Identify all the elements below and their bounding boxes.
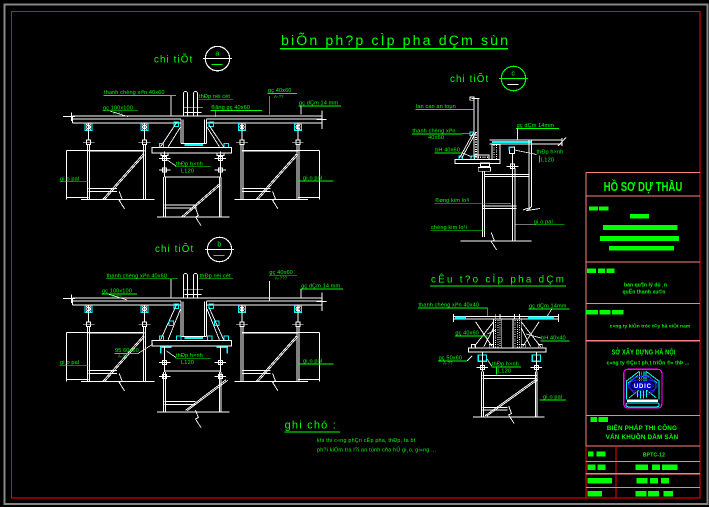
svg-text:40x60: 40x60: [428, 135, 444, 141]
svg-text:L120: L120: [541, 157, 554, 163]
svg-text:SỞ XÂY DỰNG HÀ NỘI: SỞ XÂY DỰNG HÀ NỘI: [611, 347, 675, 357]
svg-text:L120: L120: [498, 368, 511, 374]
svg-text:A-???: A-???: [275, 276, 288, 281]
svg-text:BIỆN PHÁP THI CÔNG: BIỆN PHÁP THI CÔNG: [607, 423, 677, 432]
svg-text:A-??: A-??: [274, 94, 284, 99]
svg-text:a: a: [215, 51, 219, 58]
svg-text:®ãng gç 40x60: ®ãng gç 40x60: [211, 104, 250, 111]
svg-text:cÊu t?o cÌp pha dÇm: cÊu t?o cÌp pha dÇm: [431, 275, 566, 286]
svg-text:chi tiÕt: chi tiÕt: [450, 74, 489, 85]
svg-text:HỒ SƠ DỰ THẦU: HỒ SƠ DỰ THẦU: [604, 180, 683, 195]
svg-text:c«ng ty ®Çu t­ ph¸t triÓn ®« t: c«ng ty ®Çu t­ ph¸t triÓn ®« thÞ ...: [607, 359, 690, 367]
svg-text:chi tiÕt: chi tiÕt: [154, 54, 193, 65]
svg-text:ph?i kiÓm tra l?i an túnh cña: ph?i kiÓm tra l?i an túnh cña hÛ gi¸o, g…: [317, 446, 436, 453]
svg-text:quËn thanh xu©n: quËn thanh xu©n: [623, 288, 666, 295]
svg-text:c: c: [511, 71, 515, 78]
svg-text:L120: L120: [181, 168, 194, 174]
svg-text:A-??: A-??: [118, 354, 128, 359]
svg-text:UDIC: UDIC: [634, 384, 652, 390]
svg-text:thanh chèng xiªn 40x60: thanh chèng xiªn 40x60: [104, 89, 165, 96]
svg-text:c«ng ty kiÕn tróc t©y hå viÖt: c«ng ty kiÕn tróc t©y hå viÖt nam: [610, 323, 690, 330]
svg-text:ghi chó :: ghi chó :: [285, 420, 337, 432]
svg-text:A-??: A-??: [443, 361, 453, 366]
svg-text:ban qu¶n lý dù ¸n: ban qu¶n lý dù ¸n: [624, 282, 667, 288]
svg-text:biÕn ph?p cÌp pha dÇm sùn: biÕn ph?p cÌp pha dÇm sùn: [281, 32, 510, 49]
svg-text:BPTC-12: BPTC-12: [643, 452, 665, 458]
svg-text:L120: L120: [181, 360, 194, 366]
svg-text:chi tiÕt: chi tiÕt: [155, 244, 194, 255]
svg-text:khi thi c«ng phÇn cÊp pha, thÐ: khi thi c«ng phÇn cÊp pha, thÐp, ta bt: [317, 436, 416, 444]
svg-text:thÐp h×nh: thÐp h×nh: [537, 149, 564, 155]
svg-text:b: b: [217, 242, 221, 249]
